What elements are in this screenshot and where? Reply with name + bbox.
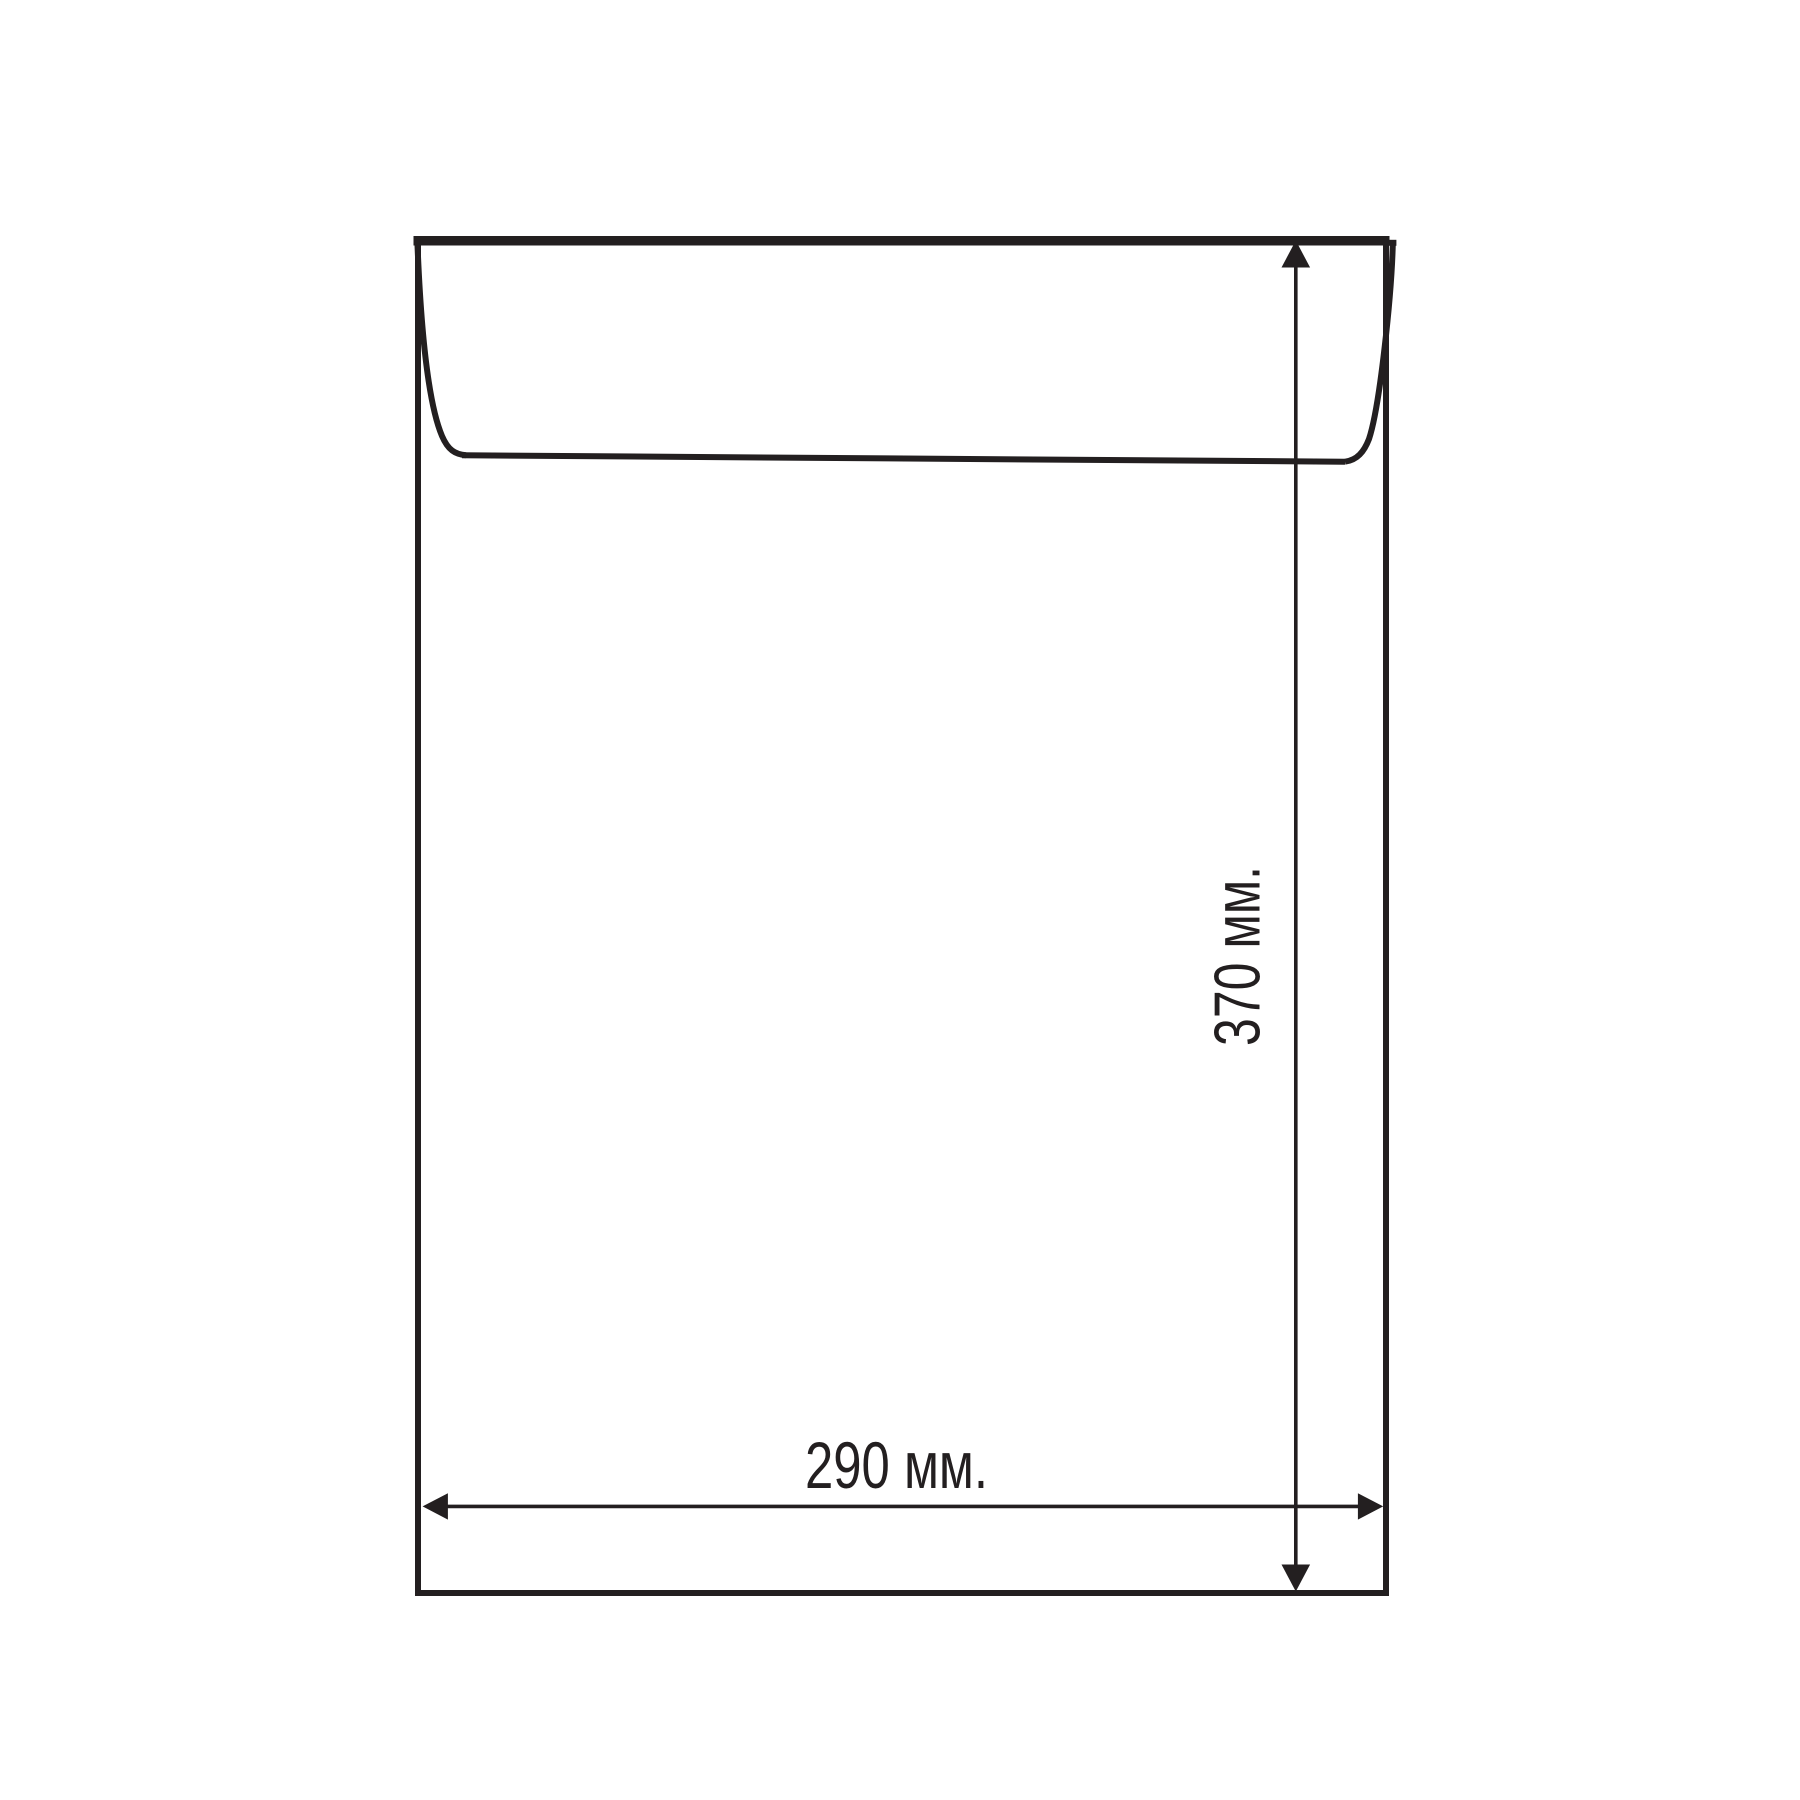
svg-text:370 мм.: 370 мм. xyxy=(1201,866,1274,1046)
svg-text:290 мм.: 290 мм. xyxy=(805,1428,988,1502)
